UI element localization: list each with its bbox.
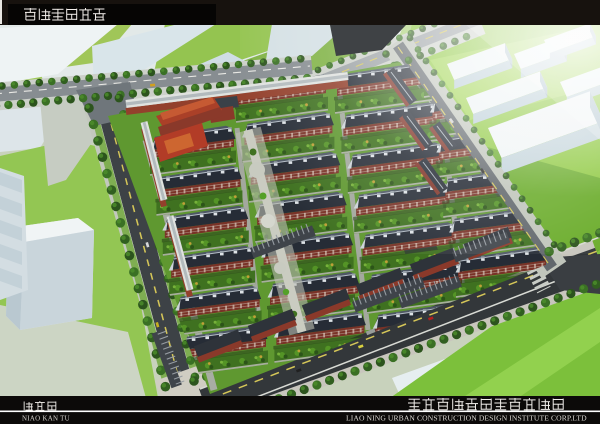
- svg-text:LIAO NING URBAN CONSTRUCTION D: LIAO NING URBAN CONSTRUCTION DESIGN INST…: [346, 414, 587, 423]
- svg-text:NIAO KAN TU: NIAO KAN TU: [22, 416, 70, 423]
